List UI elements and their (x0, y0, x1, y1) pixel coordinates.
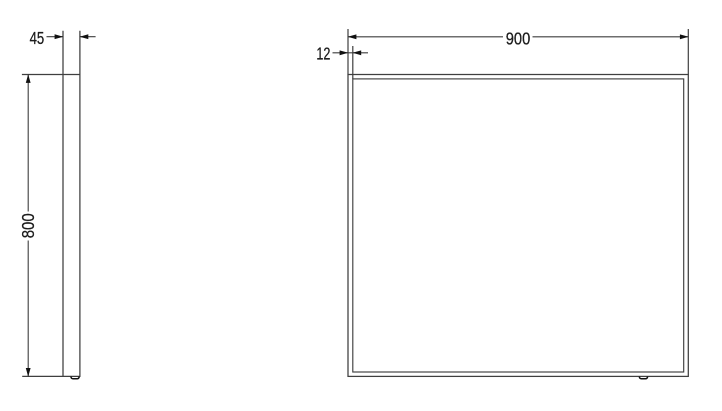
svg-text:800: 800 (18, 213, 38, 238)
svg-text:900: 900 (506, 28, 531, 48)
svg-text:12: 12 (316, 44, 330, 64)
svg-text:45: 45 (30, 28, 45, 48)
